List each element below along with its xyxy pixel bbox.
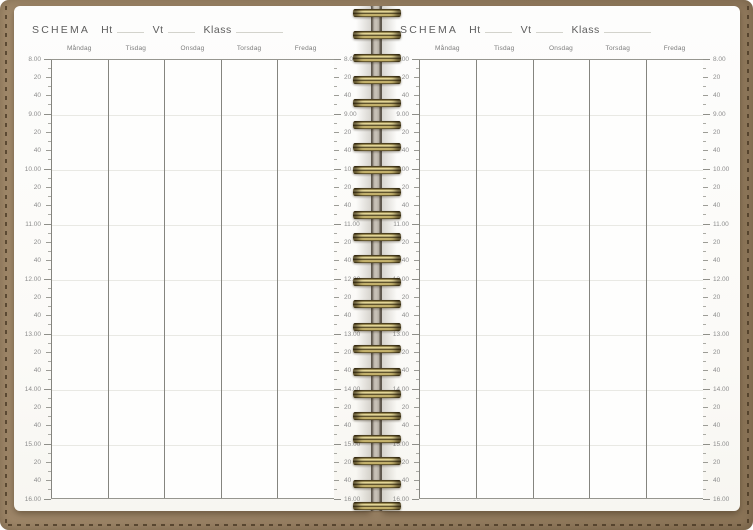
day-column-friday xyxy=(277,60,334,498)
coil-loop xyxy=(353,368,401,376)
time-tick xyxy=(334,233,337,234)
time-tick xyxy=(703,150,708,151)
time-tick xyxy=(334,242,339,243)
cover-stitching-right xyxy=(747,6,749,524)
field-ht-label: Ht xyxy=(469,24,481,36)
time-tick xyxy=(334,141,337,142)
time-tick xyxy=(334,132,339,133)
field-vt: Vt xyxy=(153,23,195,36)
time-tick xyxy=(334,104,337,105)
time-tick xyxy=(703,324,706,325)
time-tick xyxy=(334,251,337,252)
time-tick xyxy=(703,306,706,307)
minute-label: 40 xyxy=(713,257,720,264)
time-tick xyxy=(412,444,419,445)
minute-label: 20 xyxy=(713,294,720,301)
time-tick xyxy=(334,416,337,417)
hour-label: 11.00 xyxy=(25,221,41,228)
hour-label: 9.00 xyxy=(713,111,726,118)
coil-loop xyxy=(353,390,401,398)
time-tick xyxy=(334,361,337,362)
time-tick xyxy=(334,95,339,96)
minute-label: 20 xyxy=(344,239,351,246)
minute-label: 40 xyxy=(34,312,41,319)
field-vt: Vt xyxy=(521,23,563,36)
page-header: SCHEMA Ht Vt Klass xyxy=(400,23,660,36)
time-tick xyxy=(334,114,341,115)
time-tick xyxy=(334,214,337,215)
time-tick xyxy=(334,453,337,454)
hour-label: 10.00 xyxy=(713,166,729,173)
schedule-grid xyxy=(419,59,703,499)
page-header: SCHEMA Ht Vt Klass xyxy=(32,23,292,36)
minute-label: 20 xyxy=(713,349,720,356)
time-tick xyxy=(703,205,708,206)
minute-label: 20 xyxy=(34,129,41,136)
time-tick xyxy=(703,68,706,69)
day-label-thursday: Torsdag xyxy=(221,45,278,59)
minute-label: 20 xyxy=(344,294,351,301)
hour-label: 11.00 xyxy=(713,221,729,228)
schema-title: SCHEMA xyxy=(400,24,458,36)
time-tick xyxy=(334,159,337,160)
time-tick xyxy=(703,398,706,399)
time-tick xyxy=(334,324,337,325)
time-tick xyxy=(334,297,339,298)
time-tick xyxy=(412,59,419,60)
time-tick xyxy=(703,352,708,353)
field-ht-label: Ht xyxy=(101,24,113,36)
day-column-monday xyxy=(51,60,108,498)
minute-label: 40 xyxy=(713,92,720,99)
time-tick xyxy=(703,499,710,500)
minute-label: 40 xyxy=(402,422,409,429)
hour-label: 8.00 xyxy=(28,56,41,63)
schema-title: SCHEMA xyxy=(32,24,90,36)
time-tick xyxy=(44,114,51,115)
time-tick xyxy=(703,178,706,179)
minute-label: 20 xyxy=(344,349,351,356)
time-tick xyxy=(703,453,706,454)
time-tick xyxy=(334,389,341,390)
week-sheet: Måndag Tisdag Onsdag Torsdag Fredag 8.00… xyxy=(21,45,364,499)
time-tick xyxy=(703,242,708,243)
time-tick xyxy=(334,425,339,426)
field-vt-blank xyxy=(168,23,195,33)
planner-photo: SCHEMA Ht Vt Klass Måndag Tisdag Onsdag … xyxy=(0,0,753,530)
time-tick xyxy=(44,169,51,170)
time-tick xyxy=(334,77,339,78)
minute-label: 40 xyxy=(34,92,41,99)
time-tick xyxy=(703,159,706,160)
planner-page-left: SCHEMA Ht Vt Klass Måndag Tisdag Onsdag … xyxy=(14,6,371,511)
time-tick xyxy=(412,389,419,390)
time-tick xyxy=(703,141,706,142)
minute-label: 40 xyxy=(713,202,720,209)
grid-wrap: 8.0020409.00204010.00204011.00204012.002… xyxy=(21,59,364,499)
day-label-thursday: Torsdag xyxy=(589,45,646,59)
minute-label: 40 xyxy=(402,147,409,154)
time-tick xyxy=(334,169,341,170)
time-tick xyxy=(703,233,706,234)
time-tick xyxy=(703,224,710,225)
field-klass: Klass xyxy=(572,23,651,36)
minute-label: 40 xyxy=(34,367,41,374)
minute-label: 20 xyxy=(34,74,41,81)
field-vt-blank xyxy=(536,23,563,33)
day-header-row: Måndag Tisdag Onsdag Torsdag Fredag xyxy=(51,45,334,59)
time-tick xyxy=(412,114,419,115)
time-tick xyxy=(703,114,710,115)
field-klass-blank xyxy=(604,23,651,33)
coil-loop xyxy=(353,255,401,263)
minute-label: 40 xyxy=(713,367,720,374)
minute-label: 40 xyxy=(402,367,409,374)
time-tick xyxy=(44,444,51,445)
field-ht: Ht xyxy=(469,23,512,36)
time-tick xyxy=(334,224,341,225)
day-column-wednesday xyxy=(533,60,590,498)
minute-label: 20 xyxy=(402,404,409,411)
minute-label: 20 xyxy=(344,184,351,191)
time-tick xyxy=(44,224,51,225)
coil-loop xyxy=(353,278,401,286)
coil-loop xyxy=(353,211,401,219)
day-label-friday: Fredag xyxy=(646,45,703,59)
minute-label: 20 xyxy=(713,129,720,136)
time-tick xyxy=(703,196,706,197)
minute-label: 20 xyxy=(402,129,409,136)
coil-loop xyxy=(353,300,401,308)
coil-loop xyxy=(353,502,401,510)
schedule-grid xyxy=(51,59,334,499)
time-tick xyxy=(412,224,419,225)
day-label-wednesday: Onsdag xyxy=(164,45,221,59)
time-tick xyxy=(703,370,708,371)
field-klass-label: Klass xyxy=(204,24,232,36)
time-tick xyxy=(703,214,706,215)
minute-label: 20 xyxy=(34,294,41,301)
time-tick xyxy=(334,86,337,87)
time-tick xyxy=(703,444,710,445)
time-tick xyxy=(703,132,708,133)
minute-label: 40 xyxy=(713,477,720,484)
time-tick xyxy=(334,187,339,188)
minute-label: 20 xyxy=(402,74,409,81)
time-tick xyxy=(703,425,708,426)
time-tick xyxy=(44,334,51,335)
field-klass-label: Klass xyxy=(572,24,600,36)
hour-label: 14.00 xyxy=(713,386,729,393)
time-tick xyxy=(334,471,337,472)
day-label-wednesday: Onsdag xyxy=(533,45,590,59)
time-tick xyxy=(334,407,339,408)
minute-label: 40 xyxy=(402,257,409,264)
day-column-monday xyxy=(419,60,476,498)
day-column-thursday xyxy=(221,60,278,498)
minute-label: 40 xyxy=(344,422,351,429)
time-tick xyxy=(334,480,339,481)
minute-label: 40 xyxy=(402,202,409,209)
minute-label: 20 xyxy=(713,239,720,246)
time-tick xyxy=(334,343,337,344)
minute-label: 20 xyxy=(713,74,720,81)
time-tick xyxy=(703,389,710,390)
minute-label: 40 xyxy=(34,477,41,484)
time-tick xyxy=(703,86,706,87)
minute-label: 40 xyxy=(34,202,41,209)
hour-label: 15.00 xyxy=(25,441,41,448)
cover-stitching-bottom xyxy=(8,524,745,526)
time-tick xyxy=(703,123,706,124)
minute-label: 40 xyxy=(402,312,409,319)
field-klass-blank xyxy=(236,23,283,33)
minute-label: 40 xyxy=(344,202,351,209)
wire-coil-binding xyxy=(353,9,401,510)
day-header-row: Måndag Tisdag Onsdag Torsdag Fredag xyxy=(419,45,703,59)
time-ruler-left: 8.0020409.00204010.00204011.00204012.002… xyxy=(21,59,51,499)
time-tick xyxy=(334,499,341,500)
minute-label: 20 xyxy=(402,294,409,301)
coil-loop xyxy=(353,457,401,465)
time-tick xyxy=(703,480,708,481)
coil-loop xyxy=(353,323,401,331)
time-tick xyxy=(703,169,710,170)
time-tick xyxy=(334,196,337,197)
time-tick xyxy=(412,279,419,280)
time-tick xyxy=(703,104,706,105)
minute-label: 40 xyxy=(713,312,720,319)
coil-loop xyxy=(353,9,401,17)
hour-label: 13.00 xyxy=(25,331,41,338)
time-tick xyxy=(703,471,706,472)
minute-label: 20 xyxy=(713,459,720,466)
time-tick xyxy=(334,370,339,371)
time-tick xyxy=(334,306,337,307)
hour-label: 9.00 xyxy=(28,111,41,118)
time-tick xyxy=(703,297,708,298)
minute-label: 20 xyxy=(713,184,720,191)
coil-loop xyxy=(353,166,401,174)
hour-label: 12.00 xyxy=(713,276,729,283)
field-vt-label: Vt xyxy=(153,24,164,36)
minute-label: 20 xyxy=(344,129,351,136)
day-column-wednesday xyxy=(164,60,221,498)
time-tick xyxy=(334,315,339,316)
minute-label: 20 xyxy=(402,459,409,466)
coil-loop xyxy=(353,54,401,62)
minute-label: 40 xyxy=(344,257,351,264)
time-tick xyxy=(44,499,51,500)
coil-loop xyxy=(353,143,401,151)
time-tick xyxy=(412,169,419,170)
minute-label: 40 xyxy=(34,422,41,429)
coil-loop xyxy=(353,76,401,84)
time-tick xyxy=(334,334,341,335)
time-tick xyxy=(412,499,419,500)
day-column-thursday xyxy=(589,60,646,498)
day-label-monday: Måndag xyxy=(419,45,476,59)
minute-label: 20 xyxy=(402,349,409,356)
minute-label: 20 xyxy=(344,404,351,411)
coil-loop xyxy=(353,345,401,353)
time-tick xyxy=(334,269,337,270)
time-tick xyxy=(334,260,339,261)
field-klass: Klass xyxy=(204,23,283,36)
minute-label: 40 xyxy=(713,422,720,429)
time-tick xyxy=(334,434,337,435)
hour-label: 10.00 xyxy=(25,166,41,173)
minute-label: 40 xyxy=(713,147,720,154)
time-tick xyxy=(334,379,337,380)
time-tick xyxy=(44,59,51,60)
time-tick xyxy=(703,251,706,252)
time-tick xyxy=(412,334,419,335)
time-tick xyxy=(44,279,51,280)
time-tick xyxy=(334,68,337,69)
minute-label: 40 xyxy=(344,477,351,484)
time-tick xyxy=(703,59,710,60)
minute-label: 40 xyxy=(402,92,409,99)
planner-page-right: SCHEMA Ht Vt Klass Måndag Tisdag Onsdag … xyxy=(382,6,740,511)
time-tick xyxy=(703,334,710,335)
time-tick xyxy=(703,95,708,96)
coil-loop xyxy=(353,480,401,488)
day-label-tuesday: Tisdag xyxy=(108,45,165,59)
minute-label: 20 xyxy=(34,459,41,466)
day-label-friday: Fredag xyxy=(277,45,334,59)
field-vt-label: Vt xyxy=(521,24,532,36)
minute-label: 20 xyxy=(34,404,41,411)
coil-loop xyxy=(353,412,401,420)
time-tick xyxy=(334,178,337,179)
time-tick xyxy=(703,269,706,270)
day-column-tuesday xyxy=(476,60,533,498)
time-tick xyxy=(334,205,339,206)
hour-label: 16.00 xyxy=(25,496,41,503)
time-tick xyxy=(703,279,710,280)
time-tick xyxy=(334,352,339,353)
coil-loop xyxy=(353,435,401,443)
time-tick xyxy=(703,462,708,463)
coil-loop xyxy=(353,31,401,39)
coil-loop xyxy=(353,121,401,129)
field-ht-blank xyxy=(117,23,144,33)
coil-loop xyxy=(353,99,401,107)
day-label-tuesday: Tisdag xyxy=(476,45,533,59)
time-tick xyxy=(703,260,708,261)
time-tick xyxy=(703,361,706,362)
grid-wrap: 8.0020409.00204010.00204011.00204012.002… xyxy=(389,59,733,499)
hour-label: 14.00 xyxy=(25,386,41,393)
time-tick xyxy=(703,434,706,435)
minute-label: 40 xyxy=(34,147,41,154)
day-column-tuesday xyxy=(108,60,165,498)
coil-loop xyxy=(353,188,401,196)
time-tick xyxy=(334,150,339,151)
minute-label: 20 xyxy=(344,74,351,81)
minute-label: 20 xyxy=(402,239,409,246)
cover-stitching-left xyxy=(5,6,7,524)
time-tick xyxy=(334,279,341,280)
minute-label: 20 xyxy=(402,184,409,191)
hour-label: 13.00 xyxy=(713,331,729,338)
minute-label: 40 xyxy=(34,257,41,264)
time-tick xyxy=(703,288,706,289)
time-tick xyxy=(44,389,51,390)
time-tick xyxy=(703,343,706,344)
minute-label: 20 xyxy=(34,184,41,191)
minute-label: 20 xyxy=(34,239,41,246)
coil-loop xyxy=(353,233,401,241)
time-tick xyxy=(703,187,708,188)
hour-label: 12.00 xyxy=(25,276,41,283)
time-tick xyxy=(334,288,337,289)
time-tick xyxy=(703,416,706,417)
minute-label: 40 xyxy=(344,92,351,99)
day-label-monday: Måndag xyxy=(51,45,108,59)
minute-label: 40 xyxy=(402,477,409,484)
minute-label: 20 xyxy=(34,349,41,356)
time-tick xyxy=(703,489,706,490)
time-tick xyxy=(334,462,339,463)
hour-label: 8.00 xyxy=(713,56,726,63)
time-tick xyxy=(703,77,708,78)
minute-label: 40 xyxy=(344,312,351,319)
time-tick xyxy=(334,398,337,399)
minute-label: 40 xyxy=(344,367,351,374)
hour-label: 15.00 xyxy=(713,441,729,448)
hour-label: 16.00 xyxy=(713,496,729,503)
time-tick xyxy=(334,123,337,124)
time-tick xyxy=(703,379,706,380)
field-ht-blank xyxy=(485,23,512,33)
field-ht: Ht xyxy=(101,23,144,36)
time-ruler-right: 8.0020409.00204010.00204011.00204012.002… xyxy=(703,59,733,499)
minute-label: 20 xyxy=(344,459,351,466)
week-sheet: Måndag Tisdag Onsdag Torsdag Fredag 8.00… xyxy=(389,45,733,499)
time-tick xyxy=(334,489,337,490)
minute-label: 40 xyxy=(344,147,351,154)
time-tick xyxy=(334,59,341,60)
time-tick xyxy=(703,315,708,316)
minute-label: 20 xyxy=(713,404,720,411)
time-tick xyxy=(703,407,708,408)
day-column-friday xyxy=(646,60,703,498)
time-tick xyxy=(334,444,341,445)
